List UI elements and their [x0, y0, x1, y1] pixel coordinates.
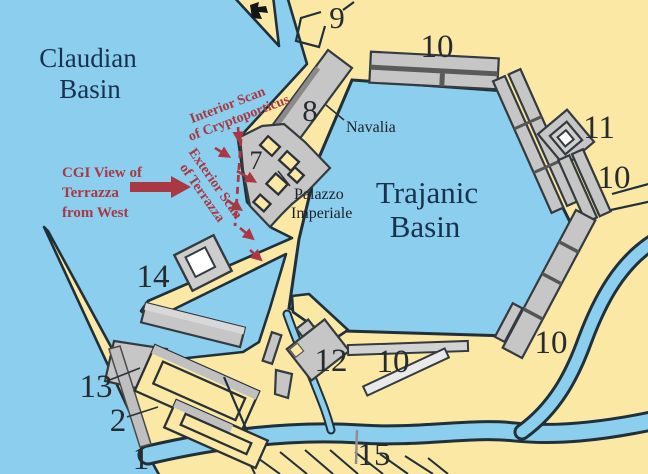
breakwater-mole: [141, 303, 245, 347]
cgi-view-label-line2: Terrazza: [62, 185, 119, 201]
label-13: 13: [80, 369, 113, 405]
small-structure: [275, 370, 292, 398]
label-10-ne: 10: [598, 160, 631, 196]
label-15: 15: [358, 437, 391, 473]
label-9: 9: [329, 0, 345, 35]
portus-harbor-map: Claudian Basin Trajanic Basin 9 10 11 10…: [0, 0, 648, 474]
label-12: 12: [315, 343, 348, 379]
map-canvas: Claudian Basin Trajanic Basin 9 10 11 10…: [0, 0, 648, 474]
palazzo-label-line1: Palazzo: [294, 186, 344, 203]
palazzo-label-line2: Imperiale: [291, 205, 352, 222]
label-7: 7: [250, 146, 263, 175]
label-8: 8: [302, 93, 318, 128]
cgi-view-label-line1: CGI View of: [62, 165, 143, 181]
trajanic-basin-label-line1: Trajanic: [376, 175, 478, 210]
label-2: 2: [110, 403, 127, 439]
label-10-top: 10: [421, 29, 454, 65]
navalia-label: Navalia: [346, 119, 396, 136]
label-14: 14: [137, 259, 170, 295]
label-11: 11: [583, 110, 615, 146]
claudian-basin-label-line1: Claudian: [39, 43, 137, 73]
cgi-view-label-line3: from West: [62, 205, 129, 221]
label-10-south: 10: [377, 344, 410, 380]
claudian-basin-label-line2: Basin: [59, 74, 121, 104]
label-10-se: 10: [535, 325, 568, 361]
label-1: 1: [133, 441, 150, 474]
trajanic-basin-label-line2: Basin: [390, 209, 461, 244]
